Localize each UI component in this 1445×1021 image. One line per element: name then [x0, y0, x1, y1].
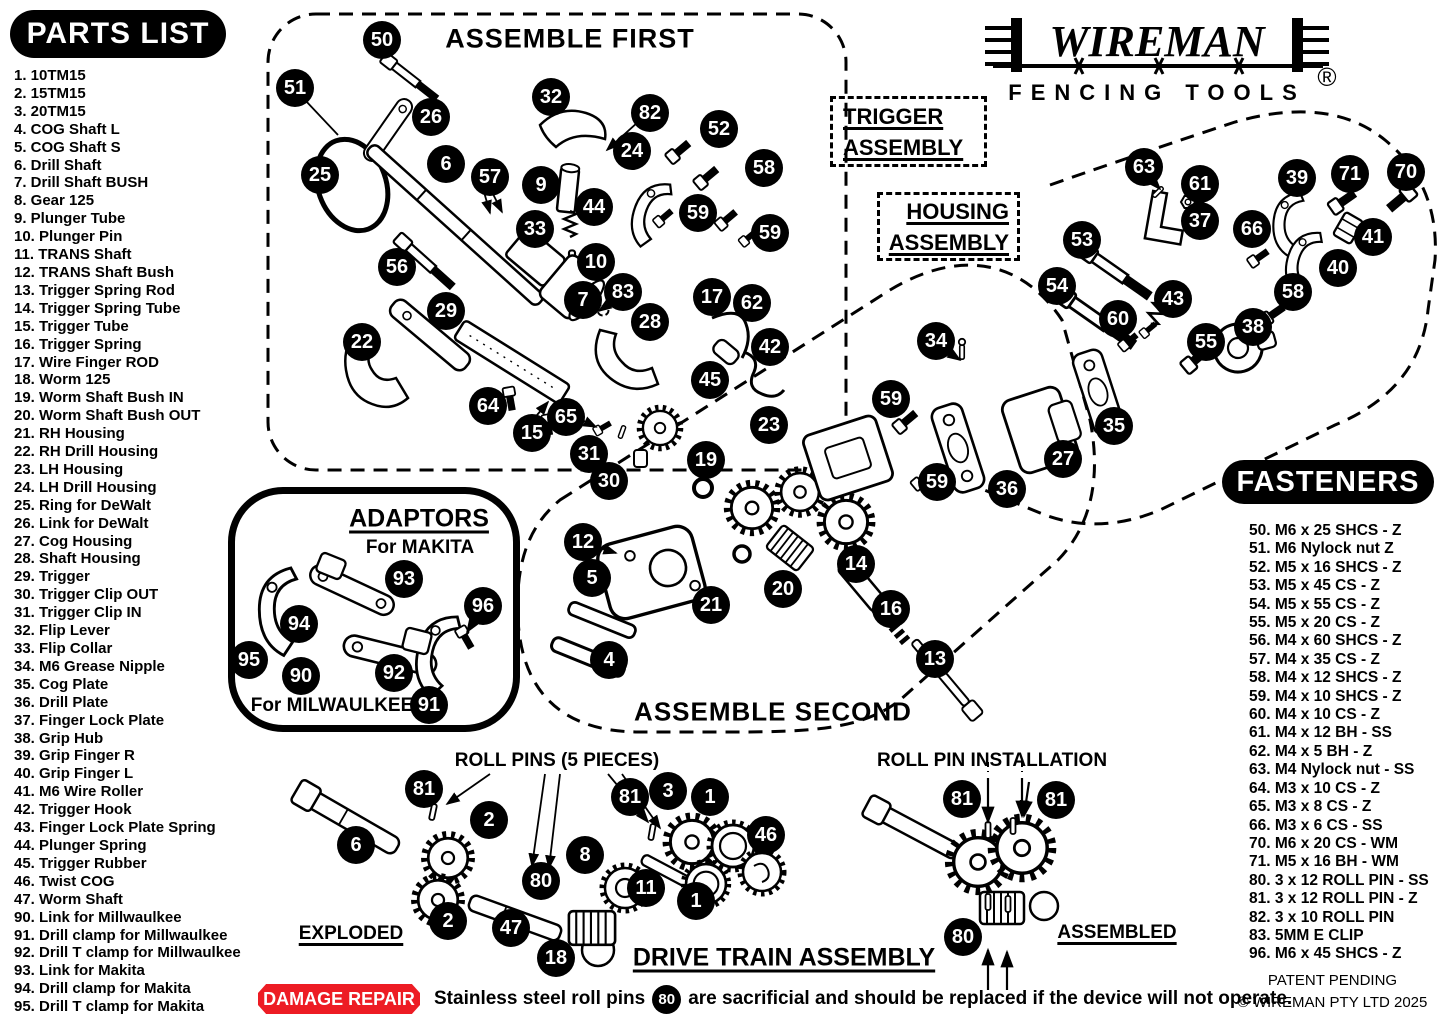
fasteners-item: 57. M4 x 35 CS - Z: [1249, 651, 1429, 669]
parts-list-item: 44. Plunger Spring: [14, 837, 241, 855]
fasteners-item: 71. M5 x 16 BH - WM: [1249, 853, 1429, 871]
housing-assembly-line1: HOUSING: [896, 196, 1017, 227]
damage-repair-note: Stainless steel roll pins 80 are sacrifi…: [434, 983, 1292, 1015]
balloon-61: 61: [1181, 165, 1219, 203]
assembled-label: ASSEMBLED: [1057, 922, 1176, 944]
parts-list-item: 13. Trigger Spring Rod: [14, 282, 241, 300]
balloon-81: 81: [943, 780, 981, 818]
parts-list-item: 1. 10TM15: [14, 67, 241, 85]
parts-list-item: 17. Wire Finger ROD: [14, 354, 241, 372]
damage-repair-label: DAMAGE REPAIR: [263, 989, 415, 1010]
fasteners-item: 96. M6 x 45 SHCS - Z: [1249, 945, 1429, 963]
parts-list-item: 18. Worm 125: [14, 371, 241, 389]
balloon-83: 83: [604, 273, 642, 311]
balloon-18: 18: [537, 939, 575, 977]
parts-list-item: 8. Gear 125: [14, 192, 241, 210]
adaptors-milwaukee-label: For MILWAULKEE: [251, 695, 414, 717]
balloon-26: 26: [412, 98, 450, 136]
parts-list-title: PARTS LIST: [27, 17, 210, 51]
balloon-59: 59: [751, 214, 789, 252]
wireman-logo: WIREMAN ® FENCING TOOLS: [983, 6, 1343, 108]
parts-list-item: 31. Trigger Clip IN: [14, 604, 241, 622]
logo-tagline: FENCING TOOLS: [1008, 80, 1306, 105]
balloon-6: 6: [427, 145, 465, 183]
parts-list-item: 32. Flip Lever: [14, 622, 241, 640]
balloon-11: 11: [627, 869, 665, 907]
balloon-5: 5: [573, 559, 611, 597]
housing-assembly-label: HOUSING ASSEMBLY: [877, 192, 1020, 261]
parts-list-item: 27. Cog Housing: [14, 533, 241, 551]
balloon-38: 38: [1234, 308, 1272, 346]
balloon-47: 47: [492, 909, 530, 947]
balloon-64: 64: [469, 387, 507, 425]
fasteners-header: FASTENERS: [1222, 460, 1434, 504]
balloon-46: 46: [747, 816, 785, 854]
drive-train-label: DRIVE TRAIN ASSEMBLY: [633, 944, 935, 973]
balloon-81: 81: [405, 770, 443, 808]
parts-list-item: 92. Drill T clamp for Millwaulkee: [14, 944, 241, 962]
balloon-55: 55: [1187, 323, 1225, 361]
fasteners-item: 54. M5 x 55 CS - Z: [1249, 596, 1429, 614]
fasteners-item: 63. M4 Nylock nut - SS: [1249, 761, 1429, 779]
parts-list-item: 47. Worm Shaft: [14, 891, 241, 909]
parts-list-item: 91. Drill clamp for Millwaulkee: [14, 927, 241, 945]
fasteners-item: 64. M3 x 10 CS - Z: [1249, 780, 1429, 798]
balloon-34: 34: [917, 322, 955, 360]
balloon-80: 80: [944, 918, 982, 956]
trigger-assembly-line1: TRIGGER: [833, 101, 984, 132]
balloon-58: 58: [1274, 273, 1312, 311]
fasteners-item: 81. 3 x 12 ROLL PIN - Z: [1249, 890, 1429, 908]
parts-list-item: 93. Link for Makita: [14, 962, 241, 980]
section-assemble-second: ASSEMBLE SECOND: [634, 697, 912, 728]
balloon-63: 63: [1125, 148, 1163, 186]
parts-list-item: 24. LH Drill Housing: [14, 479, 241, 497]
balloon-10: 10: [577, 243, 615, 281]
balloon-80-inline: 80: [652, 985, 681, 1014]
balloon-6: 6: [337, 826, 375, 864]
logo-registered-mark: ®: [1317, 62, 1336, 92]
balloon-59: 59: [872, 380, 910, 418]
balloon-23: 23: [750, 406, 788, 444]
balloon-27: 27: [1044, 440, 1082, 478]
parts-list-item: 11. TRANS Shaft: [14, 246, 241, 264]
balloon-81: 81: [611, 778, 649, 816]
parts-list-item: 5. COG Shaft S: [14, 139, 241, 157]
parts-list-item: 25. Ring for DeWalt: [14, 497, 241, 515]
parts-list-item: 41. M6 Wire Roller: [14, 783, 241, 801]
adaptors-title: ADAPTORS: [349, 505, 489, 534]
adaptors-makita-label: For MAKITA: [366, 537, 474, 559]
balloon-17: 17: [693, 278, 731, 316]
parts-list-item: 21. RH Housing: [14, 425, 241, 443]
parts-list-header: PARTS LIST: [10, 10, 226, 58]
balloon-60: 60: [1099, 300, 1137, 338]
fasteners-item: 50. M6 x 25 SHCS - Z: [1249, 522, 1429, 540]
parts-list-item: 3. 20TM15: [14, 103, 241, 121]
balloon-59: 59: [918, 463, 956, 501]
fasteners-item: 58. M4 x 12 SHCS - Z: [1249, 669, 1429, 687]
balloon-8: 8: [566, 836, 604, 874]
trigger-assembly-label: TRIGGER ASSEMBLY: [830, 96, 987, 167]
balloon-2: 2: [470, 801, 508, 839]
section-assemble-first: ASSEMBLE FIRST: [445, 24, 695, 55]
parts-list-item: 38. Grip Hub: [14, 730, 241, 748]
balloon-42: 42: [751, 328, 789, 366]
parts-list-item: 40. Grip Finger L: [14, 765, 241, 783]
balloon-62: 62: [733, 284, 771, 322]
balloon-51: 51: [276, 69, 314, 107]
parts-list-item: 30. Trigger Clip OUT: [14, 586, 241, 604]
parts-list-item: 43. Finger Lock Plate Spring: [14, 819, 241, 837]
balloon-4: 4: [590, 641, 628, 679]
parts-list-item: 33. Flip Collar: [14, 640, 241, 658]
parts-list-item: 35. Cog Plate: [14, 676, 241, 694]
fasteners-item: 82. 3 x 10 ROLL PIN: [1249, 909, 1429, 927]
fasteners-item: 56. M4 x 60 SHCS - Z: [1249, 632, 1429, 650]
balloon-32: 32: [532, 78, 570, 116]
balloon-56: 56: [378, 248, 416, 286]
balloon-1: 1: [691, 778, 729, 816]
exploded-label: EXPLODED: [299, 923, 404, 945]
parts-list-item: 28. Shaft Housing: [14, 550, 241, 568]
fasteners-item: 62. M4 x 5 BH - Z: [1249, 743, 1429, 761]
parts-list-item: 15. Trigger Tube: [14, 318, 241, 336]
balloon-45: 45: [691, 361, 729, 399]
parts-list-item: 37. Finger Lock Plate: [14, 712, 241, 730]
balloon-28: 28: [631, 303, 669, 341]
damage-repair-badge: DAMAGE REPAIR: [258, 984, 420, 1014]
balloon-50: 50: [363, 21, 401, 59]
balloon-44: 44: [575, 188, 613, 226]
fasteners-item: 60. M4 x 10 CS - Z: [1249, 706, 1429, 724]
balloon-70: 70: [1387, 153, 1425, 191]
balloon-71: 71: [1331, 155, 1369, 193]
logo-brand-text: WIREMAN: [1049, 17, 1266, 66]
damage-note-pre: Stainless steel roll pins: [434, 988, 645, 1010]
parts-list-item: 94. Drill clamp for Makita: [14, 980, 241, 998]
parts-list-item: 4. COG Shaft L: [14, 121, 241, 139]
balloon-16: 16: [872, 590, 910, 628]
balloon-37: 37: [1181, 202, 1219, 240]
balloon-30: 30: [590, 462, 628, 500]
fasteners-item: 61. M4 x 12 BH - SS: [1249, 724, 1429, 742]
fasteners-item: 51. M6 Nylock nut Z: [1249, 540, 1429, 558]
balloon-3: 3: [649, 772, 687, 810]
parts-list-item: 14. Trigger Spring Tube: [14, 300, 241, 318]
balloon-53: 53: [1063, 221, 1101, 259]
parts-list-item: 90. Link for Millwaulkee: [14, 909, 241, 927]
parts-list-item: 16. Trigger Spring: [14, 336, 241, 354]
balloon-65: 65: [547, 398, 585, 436]
parts-list-item: 23. LH Housing: [14, 461, 241, 479]
parts-list-item: 42. Trigger Hook: [14, 801, 241, 819]
balloon-82: 82: [631, 94, 669, 132]
balloon-20: 20: [764, 570, 802, 608]
balloon-54: 54: [1038, 267, 1076, 305]
balloon-66: 66: [1233, 210, 1271, 248]
balloon-52: 52: [700, 110, 738, 148]
damage-note-post: are sacrificial and should be replaced i…: [688, 988, 1292, 1010]
parts-diagram-page: WIREMAN ® FENCING TOOLS PARTS LIST 1. 10…: [0, 0, 1445, 1021]
balloon-43: 43: [1154, 280, 1192, 318]
roll-pins-label: ROLL PINS (5 PIECES): [455, 750, 659, 772]
roll-pin-installation-label: ROLL PIN INSTALLATION: [877, 750, 1107, 772]
balloon-14: 14: [837, 545, 875, 583]
parts-list-item: 20. Worm Shaft Bush OUT: [14, 407, 241, 425]
fasteners-item: 66. M3 x 6 CS - SS: [1249, 817, 1429, 835]
parts-list-item: 46. Twist COG: [14, 873, 241, 891]
fasteners-item: 83. 5MM E CLIP: [1249, 927, 1429, 945]
balloon-39: 39: [1278, 159, 1316, 197]
balloon-13: 13: [916, 640, 954, 678]
parts-list-item: 34. M6 Grease Nipple: [14, 658, 241, 676]
parts-list-item: 26. Link for DeWalt: [14, 515, 241, 533]
balloon-21: 21: [692, 586, 730, 624]
balloon-33: 33: [516, 210, 554, 248]
balloon-19: 19: [687, 441, 725, 479]
balloon-12: 12: [564, 523, 602, 561]
balloon-1: 1: [677, 882, 715, 920]
balloon-25: 25: [301, 156, 339, 194]
fasteners-list: 50. M6 x 25 SHCS - Z51. M6 Nylock nut Z5…: [1249, 522, 1429, 964]
parts-list-item: 19. Worm Shaft Bush IN: [14, 389, 241, 407]
balloon-36: 36: [988, 470, 1026, 508]
housing-assembly-line2: ASSEMBLY: [879, 227, 1017, 258]
fasteners-item: 59. M4 x 10 SHCS - Z: [1249, 688, 1429, 706]
balloon-7: 7: [564, 281, 602, 319]
parts-list-item: 9. Plunger Tube: [14, 210, 241, 228]
balloon-24: 24: [613, 132, 651, 170]
balloon-80: 80: [522, 862, 560, 900]
parts-list-item: 22. RH Drill Housing: [14, 443, 241, 461]
balloon-81: 81: [1037, 781, 1075, 819]
balloon-31: 31: [570, 435, 608, 473]
fasteners-item: 80. 3 x 12 ROLL PIN - SS: [1249, 872, 1429, 890]
parts-list: 1. 10TM152. 15TM153. 20TM154. COG Shaft …: [14, 67, 241, 1016]
balloon-57: 57: [471, 158, 509, 196]
balloon-29: 29: [427, 292, 465, 330]
balloon-40: 40: [1319, 249, 1357, 287]
balloon-35: 35: [1095, 407, 1133, 445]
balloon-58: 58: [745, 149, 783, 187]
parts-list-item: 29. Trigger: [14, 568, 241, 586]
parts-list-item: 45. Trigger Rubber: [14, 855, 241, 873]
balloon-59: 59: [679, 194, 717, 232]
parts-list-item: 95. Drill T clamp for Makita: [14, 998, 241, 1016]
parts-list-item: 12. TRANS Shaft Bush: [14, 264, 241, 282]
fasteners-title: FASTENERS: [1236, 466, 1419, 499]
balloon-41: 41: [1354, 218, 1392, 256]
parts-list-item: 39. Grip Finger R: [14, 747, 241, 765]
parts-list-item: 10. Plunger Pin: [14, 228, 241, 246]
balloon-2: 2: [429, 902, 467, 940]
fasteners-item: 65. M3 x 8 CS - Z: [1249, 798, 1429, 816]
balloon-22: 22: [343, 323, 381, 361]
balloon-15: 15: [513, 414, 551, 452]
fasteners-item: 55. M5 x 20 CS - Z: [1249, 614, 1429, 632]
trigger-assembly-line2: ASSEMBLY: [833, 132, 984, 163]
parts-list-item: 7. Drill Shaft BUSH: [14, 174, 241, 192]
parts-list-item: 36. Drill Plate: [14, 694, 241, 712]
balloon-9: 9: [522, 166, 560, 204]
parts-list-item: 6. Drill Shaft: [14, 157, 241, 175]
fasteners-item: 53. M5 x 45 CS - Z: [1249, 577, 1429, 595]
fasteners-item: 70. M6 x 20 CS - WM: [1249, 835, 1429, 853]
fasteners-item: 52. M5 x 16 SHCS - Z: [1249, 559, 1429, 577]
parts-list-item: 2. 15TM15: [14, 85, 241, 103]
